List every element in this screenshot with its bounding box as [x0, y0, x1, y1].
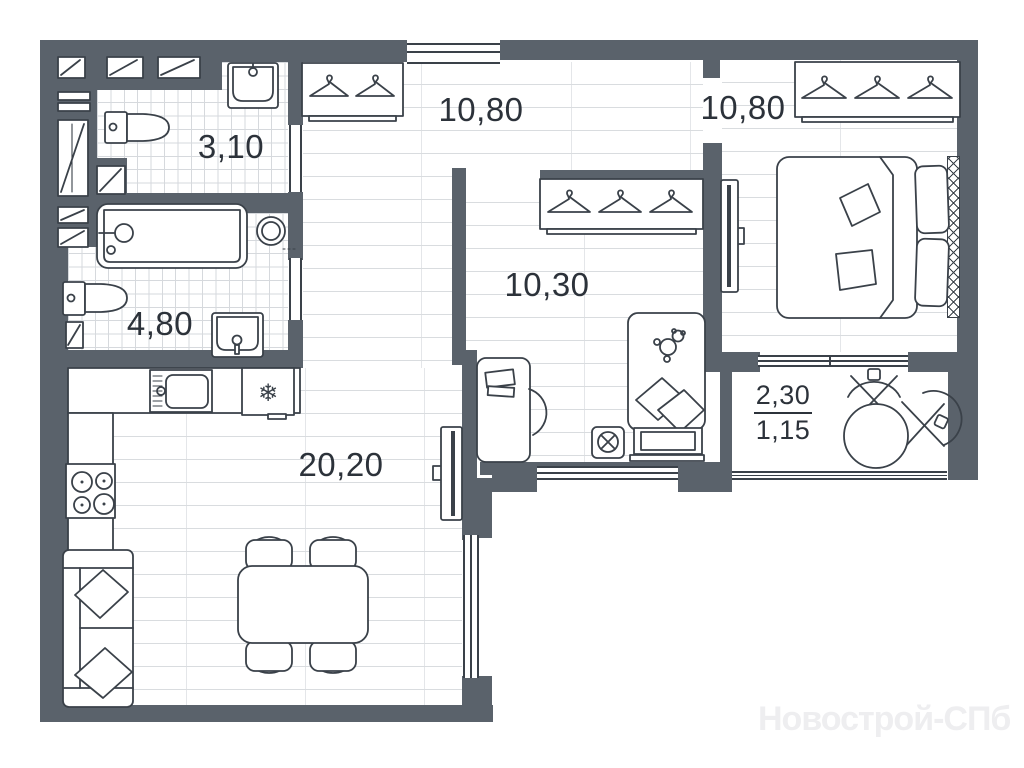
room-label-hallway: 10,80 [411, 91, 551, 129]
balcony-table-icon [844, 404, 908, 468]
wall-sink-icon [228, 63, 278, 108]
balcony-fraction-line [754, 412, 812, 414]
toilet-icon [105, 112, 169, 143]
balcony-area-full: 2,30 [747, 381, 819, 410]
kitchen-sink-icon [150, 370, 212, 412]
pouf-icon [592, 427, 624, 458]
bathtub-icon [97, 204, 247, 268]
wardrobe-icon [795, 62, 960, 122]
sofa-icon [63, 550, 133, 707]
wardrobe-icon [302, 63, 403, 121]
floor-plan: ❄ [0, 0, 1024, 768]
room-label-living-kitchen: 20,20 [271, 446, 411, 484]
room-label-balcony: 2,30 1,15 [747, 381, 819, 445]
desk-icon [477, 358, 530, 462]
wardrobe-icon [540, 179, 703, 234]
fridge-icon: ❄ [242, 368, 294, 419]
kids-bed-icon [628, 313, 705, 461]
room-label-bath-large: 4,80 [100, 305, 220, 343]
desk-chair-icon [529, 389, 546, 435]
watermark: Новострой-СПб [758, 700, 1010, 739]
room-label-bedroom: 10,80 [673, 89, 813, 127]
room-label-bath-small: 3,10 [171, 128, 291, 166]
dining-table-icon [238, 566, 368, 643]
room-label-kids-room: 10,30 [477, 266, 617, 304]
double-bed-icon [777, 157, 949, 318]
balcony-area-counted: 1,15 [747, 416, 819, 445]
svg-text:❄: ❄ [258, 379, 278, 407]
tv-icon [433, 427, 462, 520]
washing-machine-icon [257, 217, 297, 249]
stove-icon [66, 464, 115, 518]
tv-icon [721, 180, 744, 292]
